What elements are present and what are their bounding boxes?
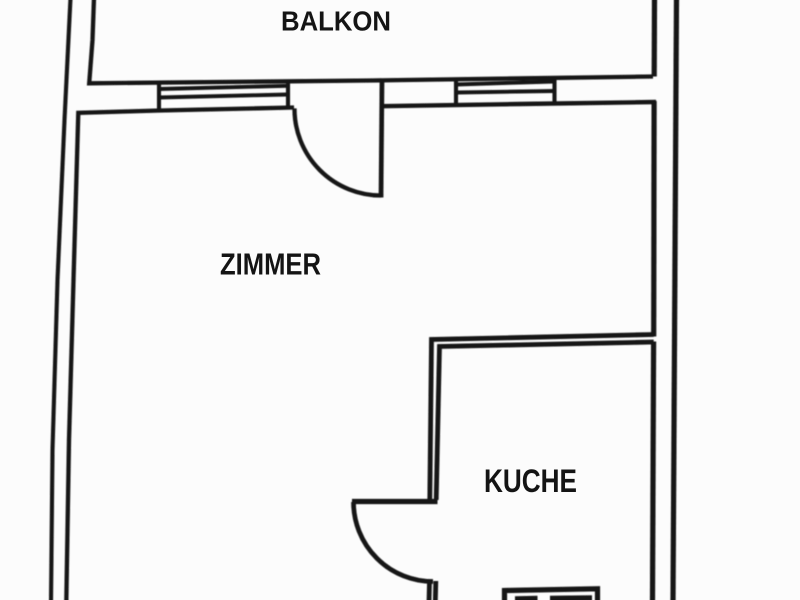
svg-text:BALKON: BALKON [281, 6, 391, 37]
svg-text:ZIMMER: ZIMMER [220, 247, 321, 282]
svg-text:KUCHE: KUCHE [484, 463, 577, 499]
